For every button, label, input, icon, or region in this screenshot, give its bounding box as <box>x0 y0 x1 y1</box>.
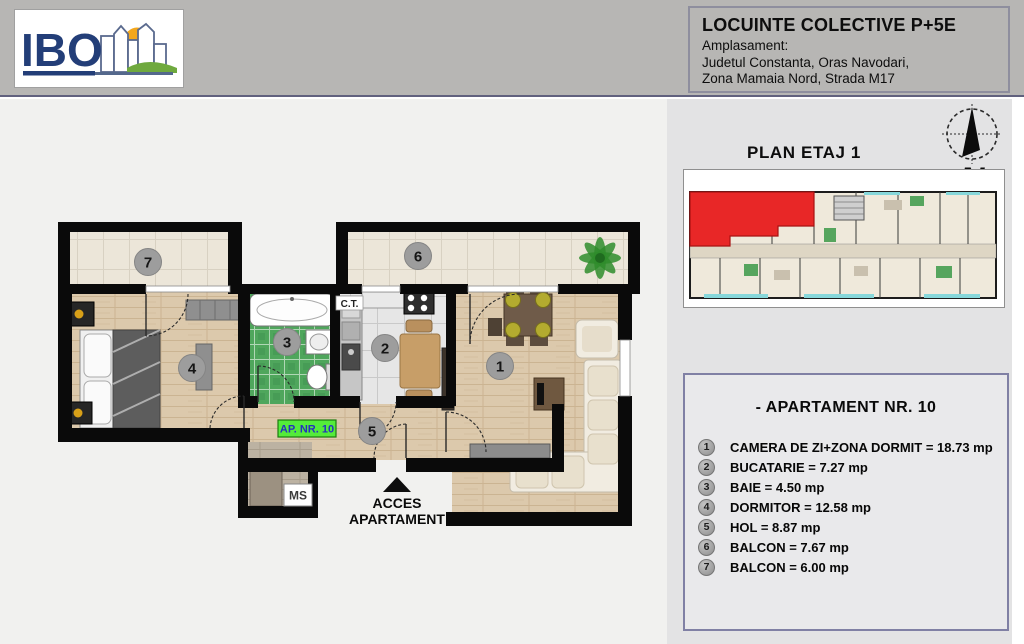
room-area-label: BALCON = 6.00 mp <box>730 560 849 575</box>
room-list-item: 4 DORMITOR = 12.58 mp <box>698 497 1007 517</box>
apartment-tag: AP. NR. 10 <box>280 424 334 436</box>
room-area-label: HOL = 8.87 mp <box>730 520 820 535</box>
floor-overview-box <box>683 169 1005 308</box>
floor-plan-area: 7 4 3 2 6 1 5 C.T. AP. NR. 10 <box>0 99 667 644</box>
apartment-info-title: - APARTAMENT NR. 10 <box>685 399 1007 417</box>
room-list-item: 7 BALCON = 6.00 mp <box>698 557 1007 577</box>
logo-text: IBO <box>21 24 103 76</box>
room-number-badge: 1 <box>698 439 715 456</box>
room-area-label: BAIE = 4.50 mp <box>730 480 824 495</box>
room-list-item: 2 BUCATARIE = 7.27 mp <box>698 457 1007 477</box>
room-area-list: 1 CAMERA DE ZI+ZONA DORMIT = 18.73 mp 2 … <box>685 437 1007 577</box>
bedroom-number: 4 <box>188 361 197 378</box>
company-logo: IBO <box>14 9 184 88</box>
balcony-plant <box>579 237 621 279</box>
balcony6-number: 6 <box>414 249 422 266</box>
room-area-label: BALCON = 7.67 mp <box>730 540 849 555</box>
room-number-badge: 7 <box>698 559 715 576</box>
address-line-2: Zona Mamaia Nord, Strada M17 <box>702 71 996 88</box>
access-label-line1: ACCES <box>372 495 421 511</box>
right-panel: N PLAN ETAJ 1 <box>667 99 1012 644</box>
address-line-1: Judetul Constanta, Oras Navodari, <box>702 55 996 72</box>
project-title-box: LOCUINTE COLECTIVE P+5E Amplasament: Jud… <box>688 6 1010 93</box>
room-number-badge: 5 <box>698 519 715 536</box>
project-title: LOCUINTE COLECTIVE P+5E <box>702 15 996 35</box>
central-heating-label: C.T. <box>341 299 359 310</box>
apartment-info-box: - APARTAMENT NR. 10 1 CAMERA DE ZI+ZONA … <box>683 373 1009 631</box>
room-list-item: 5 HOL = 8.87 mp <box>698 517 1007 537</box>
room-number-badge: 2 <box>698 459 715 476</box>
room-list-item: 6 BALCON = 7.67 mp <box>698 537 1007 557</box>
room-number-badge: 3 <box>698 479 715 496</box>
page: IBO LOCUINTE COLECTIVE P+5E Amplasament:… <box>0 0 1024 644</box>
room-number-badge: 6 <box>698 539 715 556</box>
floor-overview-plan <box>684 170 1004 307</box>
room-area-label: DORMITOR = 12.58 mp <box>730 500 871 515</box>
washing-machine-label: MS <box>289 489 307 503</box>
floor-plan-title: PLAN ETAJ 1 <box>747 143 861 163</box>
living-number: 1 <box>496 359 504 376</box>
apartment-floor-plan: 7 4 3 2 6 1 5 C.T. AP. NR. 10 <box>0 99 667 644</box>
balcony7-number: 7 <box>144 255 152 272</box>
room-area-label: BUCATARIE = 7.27 mp <box>730 460 868 475</box>
ibo-logo-icon: IBO <box>15 10 183 87</box>
hall-number: 5 <box>368 424 376 441</box>
header-bar: IBO LOCUINTE COLECTIVE P+5E Amplasament:… <box>0 0 1024 97</box>
access-label-line2: APARTAMENT <box>349 511 445 527</box>
bath-number: 3 <box>283 335 291 352</box>
room-number-badge: 4 <box>698 499 715 516</box>
entrance-arrow-icon <box>383 477 411 492</box>
address-label: Amplasament: <box>702 38 996 55</box>
room-list-item: 1 CAMERA DE ZI+ZONA DORMIT = 18.73 mp <box>698 437 1007 457</box>
room-area-label: CAMERA DE ZI+ZONA DORMIT = 18.73 mp <box>730 440 993 455</box>
kitchen-number: 2 <box>381 341 389 358</box>
room-list-item: 3 BAIE = 4.50 mp <box>698 477 1007 497</box>
